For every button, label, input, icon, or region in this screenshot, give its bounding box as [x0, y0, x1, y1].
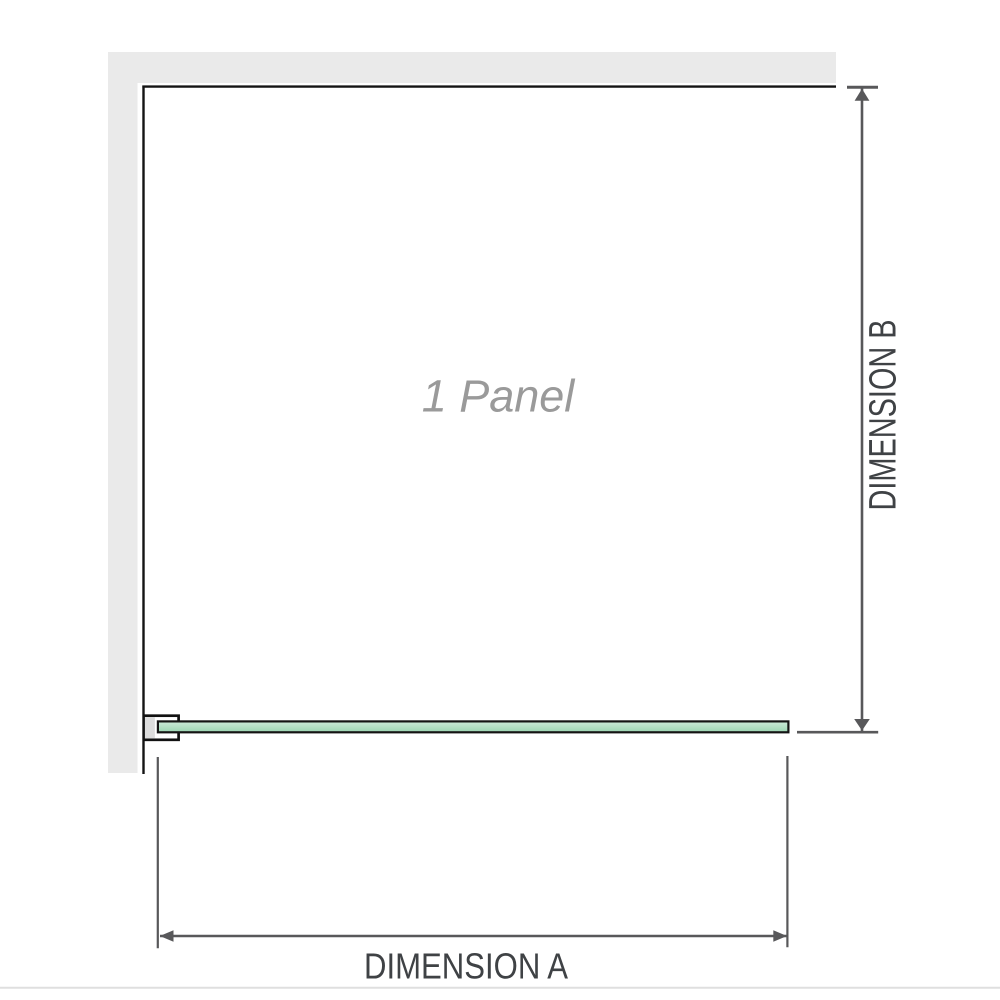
svg-text:DIMENSION B: DIMENSION B — [863, 320, 905, 511]
svg-text:1 Panel: 1 Panel — [422, 371, 577, 422]
svg-text:DIMENSION A: DIMENSION A — [364, 946, 568, 987]
